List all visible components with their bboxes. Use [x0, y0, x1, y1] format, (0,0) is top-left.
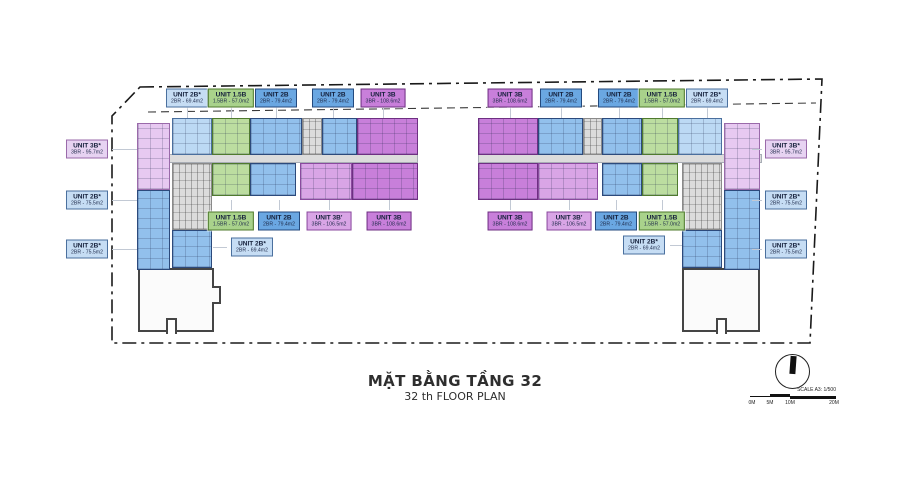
unit-label-name: UNIT 2B* [691, 92, 723, 99]
unit-label: UNIT 2B*2BR - 75.5m2 [765, 191, 807, 210]
left-corridor [137, 154, 418, 163]
leader-line [279, 200, 280, 210]
unit-2b-block [322, 118, 357, 155]
scale-bar: SCALE A3: 1/500 0M 5M 10M 20M [750, 387, 836, 409]
page-subtitle: 32 th FLOOR PLAN [404, 390, 506, 403]
leader-line [231, 107, 232, 118]
leader-line [561, 107, 562, 118]
unit-label: UNIT 1.5B1.5BR - 57.0m2 [208, 89, 254, 108]
unit-label: UNIT 2B2BR - 79.4m2 [312, 89, 354, 108]
unit-2bstar-block [137, 190, 170, 270]
unit-label-name: UNIT 3B [493, 92, 528, 99]
unit-label-name: UNIT 2B [317, 92, 349, 99]
leader-line [510, 200, 511, 210]
unit-3bprime-block [300, 163, 352, 200]
service-shaft [583, 118, 602, 155]
unit-label-area: 2BR - 75.5m2 [71, 250, 103, 256]
unit-label-area: 2BR - 75.5m2 [770, 250, 802, 256]
unit-label-name: UNIT 3B [372, 215, 407, 222]
leader-line [752, 249, 762, 250]
leader-line [112, 200, 137, 201]
unit-label-area: 2BR - 79.4m2 [600, 222, 632, 228]
unit-label: UNIT 2B2BR - 79.4m2 [595, 212, 637, 231]
leader-line [112, 149, 137, 150]
unit-label-area: 1.5BR - 57.0m2 [644, 99, 680, 105]
scale-tick: 5M [767, 400, 774, 406]
unit-label-name: UNIT 3B* [71, 143, 103, 150]
unit-label: UNIT 3B*3BR - 95.7m2 [66, 140, 108, 159]
unit-label-area: 3BR - 106.5m2 [552, 222, 587, 228]
unit-label: UNIT 2B*2BR - 69.4m2 [686, 89, 728, 108]
unit-label-area: 2BR - 69.4m2 [691, 99, 723, 105]
unit-label: UNIT 2B*2BR - 75.5m2 [765, 240, 807, 259]
scale-segment [790, 396, 836, 399]
page-title: MẶT BẰNG TẦNG 32 [368, 372, 542, 390]
unit-2b-block [250, 118, 302, 155]
unit-2b-block [538, 118, 583, 155]
scale-tick: 10M [785, 400, 795, 406]
unit-label: UNIT 3B3BR - 108.6m2 [488, 212, 533, 231]
service-shaft [302, 118, 322, 155]
unit-label-name: UNIT 2B [603, 92, 635, 99]
unit-label: UNIT 1.5B1.5BR - 57.0m2 [639, 89, 685, 108]
leader-line [333, 107, 334, 118]
unit-3b-block [357, 118, 418, 155]
unit-label-name: UNIT 2B* [236, 241, 268, 248]
unit-3bstar-block [137, 123, 170, 190]
unit-label-area: 3BR - 108.6m2 [372, 222, 407, 228]
unit-label-name: UNIT 2B [600, 215, 632, 222]
site-lines [0, 0, 897, 500]
unit-label: UNIT 3B'3BR - 106.5m2 [307, 212, 352, 231]
unit-3b-block [478, 163, 538, 200]
leader-line [569, 200, 570, 210]
unit-label-name: UNIT 3B' [552, 215, 587, 222]
unit-1-5b-block [642, 163, 678, 196]
unit-label-area: 2BR - 75.5m2 [770, 201, 802, 207]
leader-line [670, 245, 682, 246]
unit-label-area: 1.5BR - 57.0m2 [644, 222, 680, 228]
unit-2b-block [250, 163, 296, 196]
unit-label-name: UNIT 3B [493, 215, 528, 222]
leader-line [510, 107, 511, 118]
unit-label-name: UNIT 1.5B [644, 215, 680, 222]
north-needle-icon [789, 356, 796, 374]
unit-label: UNIT 2B*2BR - 69.4m2 [166, 89, 208, 108]
leader-line [662, 200, 663, 210]
unit-label-area: 2BR - 79.4m2 [263, 222, 295, 228]
unit-label-name: UNIT 2B [263, 215, 295, 222]
unit-label-area: 2BR - 69.4m2 [236, 248, 268, 254]
unit-label-name: UNIT 2B [260, 92, 292, 99]
unit-label-area: 3BR - 95.7m2 [71, 150, 103, 156]
unit-label-name: UNIT 2B* [71, 243, 103, 250]
scale-label: SCALE A3: 1/500 [797, 387, 836, 393]
unit-label-area: 2BR - 79.4m2 [260, 99, 292, 105]
leader-line [112, 249, 137, 250]
unit-label-area: 3BR - 108.6m2 [366, 99, 401, 105]
unit-label: UNIT 3B3BR - 108.6m2 [367, 212, 412, 231]
unit-2b-block [602, 163, 642, 196]
unit-label-name: UNIT 2B [545, 92, 577, 99]
leader-line [187, 107, 188, 118]
leader-line [616, 200, 617, 210]
unit-label: UNIT 3B3BR - 108.6m2 [361, 89, 406, 108]
unit-label: UNIT 2B*2BR - 69.4m2 [231, 238, 273, 257]
leader-line [752, 149, 762, 150]
leader-line [276, 107, 277, 118]
unit-label-area: 2BR - 69.4m2 [171, 99, 203, 105]
unit-label-area: 1.5BR - 57.0m2 [213, 222, 249, 228]
unit-label-area: 3BR - 108.6m2 [493, 99, 528, 105]
leader-line [619, 107, 620, 118]
unit-label-name: UNIT 1.5B [213, 215, 249, 222]
unit-label-name: UNIT 2B* [171, 92, 203, 99]
unit-label-name: UNIT 2B* [770, 243, 802, 250]
scale-tick: 0M [749, 400, 756, 406]
unit-2bstar-block [724, 190, 760, 270]
right-core [682, 163, 722, 230]
unit-label: UNIT 2B2BR - 79.4m2 [540, 89, 582, 108]
unit-2bstar-block [678, 118, 722, 155]
unit-label-name: UNIT 3B* [770, 143, 802, 150]
leader-line [329, 200, 330, 210]
unit-label: UNIT 1.5B1.5BR - 57.0m2 [639, 212, 685, 231]
leader-line [231, 200, 232, 210]
floor-plan: UNIT 2B*2BR - 69.4m2UNIT 1.5B1.5BR - 57.… [0, 0, 897, 500]
unit-label-area: 2BR - 69.4m2 [628, 246, 660, 252]
unit-label: UNIT 2B*2BR - 75.5m2 [66, 240, 108, 259]
unit-label: UNIT 1.5B1.5BR - 57.0m2 [208, 212, 254, 231]
unit-1-5b-block [212, 163, 250, 196]
scale-segment [750, 396, 770, 397]
unit-2bstar-block [172, 230, 212, 268]
unit-label-name: UNIT 1.5B [213, 92, 249, 99]
unit-label-area: 2BR - 79.4m2 [545, 99, 577, 105]
scale-segment [770, 394, 790, 397]
unit-label: UNIT 2B2BR - 79.4m2 [258, 212, 300, 231]
unit-3bstar-block [724, 123, 760, 190]
unit-label-area: 2BR - 79.4m2 [317, 99, 349, 105]
left-tower-tab [212, 286, 221, 304]
unit-label: UNIT 2B*2BR - 75.5m2 [66, 191, 108, 210]
unit-label-name: UNIT 2B* [71, 194, 103, 201]
unit-label-area: 2BR - 79.4m2 [603, 99, 635, 105]
leader-line [707, 107, 708, 118]
unit-label-name: UNIT 1.5B [644, 92, 680, 99]
unit-label: UNIT 2B*2BR - 69.4m2 [623, 236, 665, 255]
unit-label: UNIT 3B*3BR - 95.7m2 [765, 140, 807, 159]
leader-line [389, 200, 390, 210]
unit-2bstar-block [172, 118, 212, 155]
unit-1-5b-block [642, 118, 678, 155]
leader-line [752, 200, 762, 201]
leader-line [383, 107, 384, 118]
unit-3b-block [478, 118, 538, 155]
unit-label-area: 3BR - 106.5m2 [312, 222, 347, 228]
unit-label: UNIT 3B'3BR - 106.5m2 [547, 212, 592, 231]
leader-line [213, 247, 227, 248]
unit-label: UNIT 2B2BR - 79.4m2 [598, 89, 640, 108]
right-corridor [478, 154, 762, 163]
unit-label-name: UNIT 2B* [628, 239, 660, 246]
left-core [172, 163, 212, 230]
unit-label-area: 3BR - 95.7m2 [770, 150, 802, 156]
left-tower-notch [166, 318, 177, 334]
unit-3b-block [352, 163, 418, 200]
scale-tick: 20M [829, 400, 839, 406]
unit-label: UNIT 3B3BR - 108.6m2 [488, 89, 533, 108]
unit-label-area: 2BR - 75.5m2 [71, 201, 103, 207]
unit-3bprime-block [538, 163, 598, 200]
unit-2b-block [602, 118, 642, 155]
unit-label: UNIT 2B2BR - 79.4m2 [255, 89, 297, 108]
unit-label-name: UNIT 2B* [770, 194, 802, 201]
unit-label-area: 3BR - 108.6m2 [493, 222, 528, 228]
right-tower-notch [716, 318, 727, 334]
unit-label-name: UNIT 3B [366, 92, 401, 99]
unit-label-area: 1.5BR - 57.0m2 [213, 99, 249, 105]
unit-label-name: UNIT 3B' [312, 215, 347, 222]
unit-2bstar-block [682, 230, 722, 268]
unit-1-5b-block [212, 118, 250, 155]
leader-line [662, 107, 663, 118]
